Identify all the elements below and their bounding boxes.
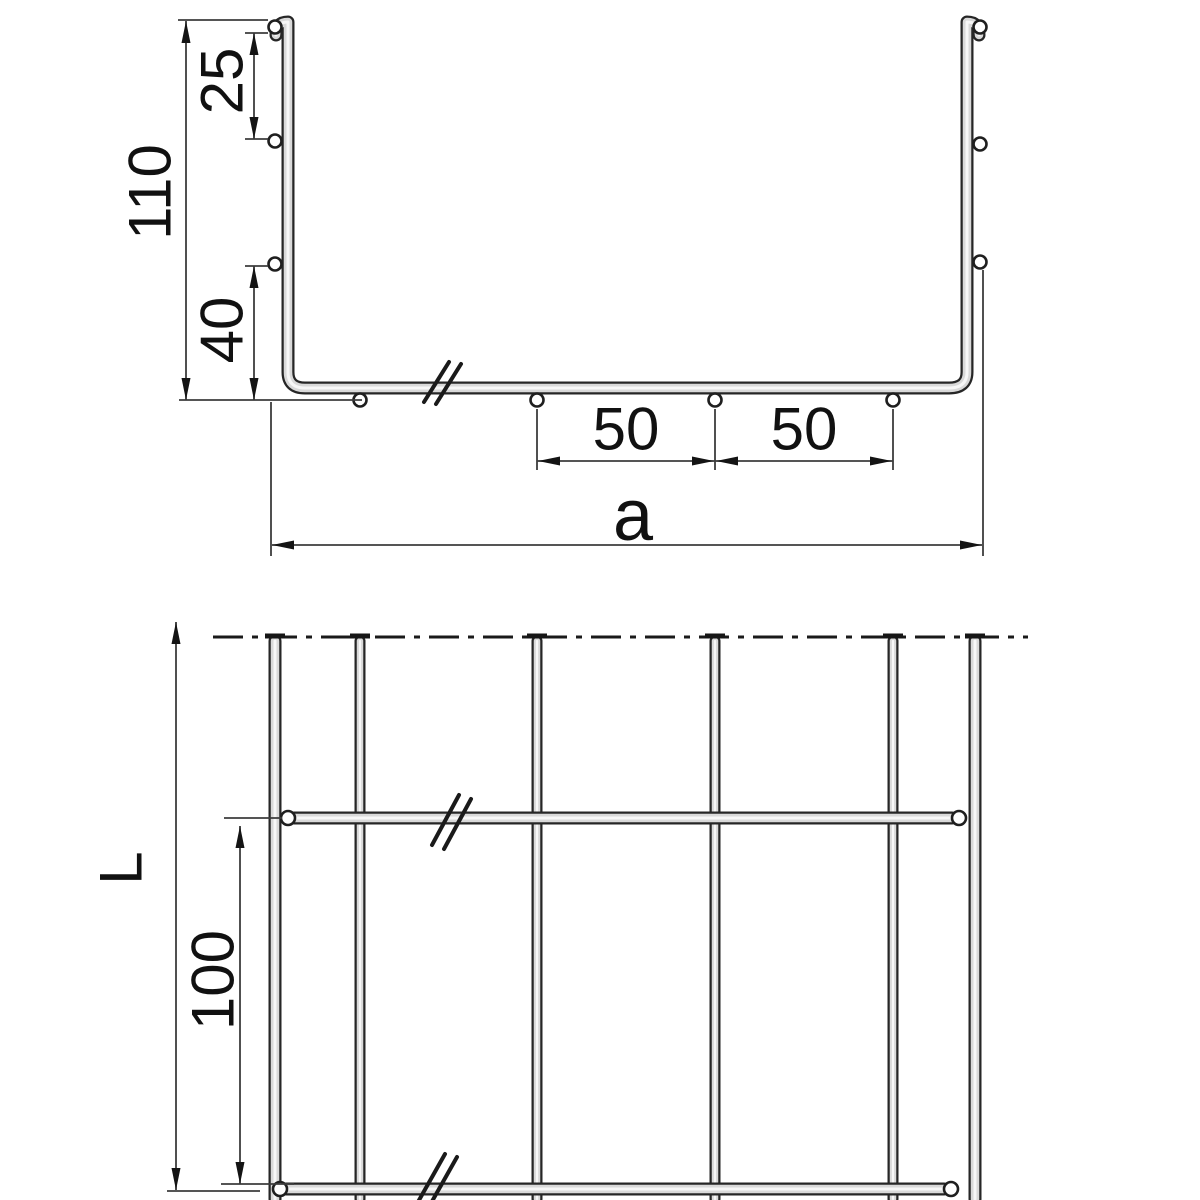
wire-section-circle <box>709 394 722 407</box>
cross-section-view: 110 25 40 50 <box>117 20 987 556</box>
wire-end-circle <box>281 811 295 825</box>
dim-label-wire-spacing-right: 50 <box>771 396 838 463</box>
dimension-25: 25 <box>189 33 269 139</box>
dim-label-total-height: 110 <box>117 144 184 240</box>
dim-label-wire-spacing-left: 50 <box>593 396 660 463</box>
wire-section-circle <box>269 258 282 271</box>
wire-section-circle <box>269 135 282 148</box>
technical-drawing-cable-tray: 110 25 40 50 <box>0 0 1200 1200</box>
wire-section-circle <box>974 21 987 34</box>
dim-label-cross-wire-pitch: 100 <box>180 930 247 1030</box>
dimension-L: L <box>88 622 261 1191</box>
dim-label-bottom-wire-offset: 40 <box>189 297 256 364</box>
dimension-40: 40 <box>189 266 269 400</box>
wire-end-circle <box>944 1182 958 1196</box>
longitudinal-wire-sections <box>269 21 987 407</box>
plan-view: L 100 <box>88 622 1029 1200</box>
wire-section-circle <box>531 394 544 407</box>
dim-label-tray-length: L <box>88 851 155 884</box>
wire-section-circle <box>974 138 987 151</box>
longitudinal-wires <box>275 641 975 1199</box>
wire-section-circle <box>269 21 282 34</box>
wire-section-circle <box>974 256 987 269</box>
dim-label-top-wire-offset: 25 <box>189 48 256 115</box>
wire-section-circle <box>887 394 900 407</box>
wire-end-circle <box>952 811 966 825</box>
dim-label-overall-width: a <box>613 476 654 556</box>
transverse-wires <box>273 811 966 1196</box>
tray-u-profile <box>276 22 979 388</box>
